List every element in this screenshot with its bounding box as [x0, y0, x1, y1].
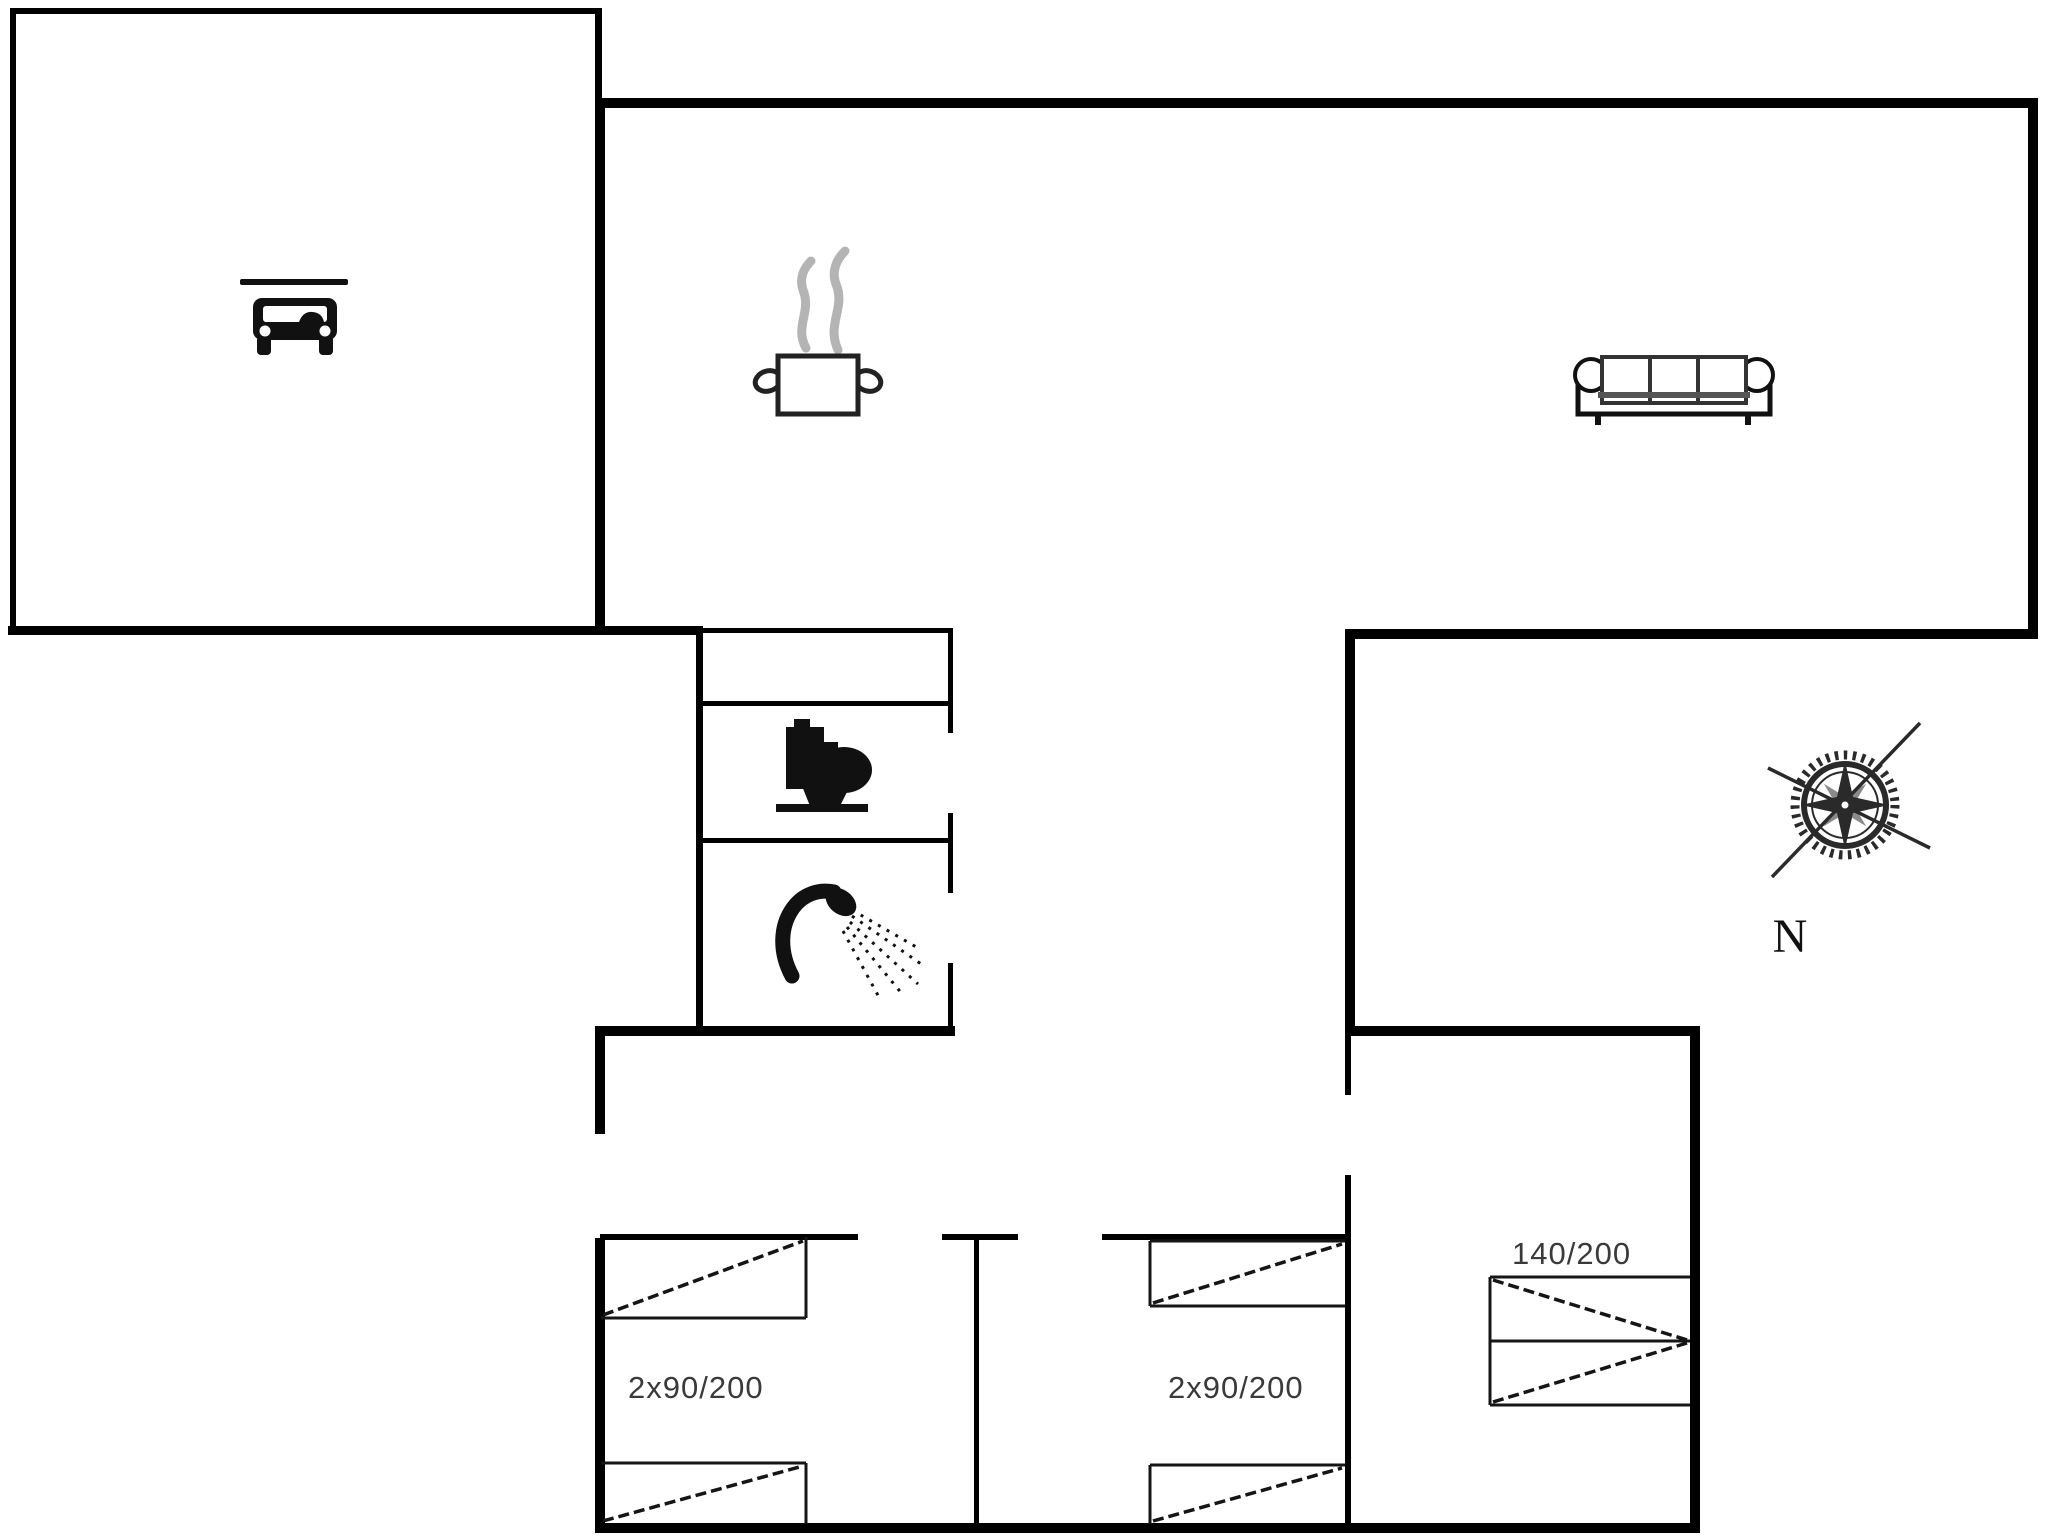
wall: [595, 1026, 955, 1036]
wall: [948, 963, 953, 1030]
bed-middle-bottom: [1150, 1465, 1345, 1524]
garage-door-line: [240, 279, 348, 285]
wall: [948, 629, 953, 733]
floor-plan: N 2x90/200 2x90/200 140/200: [0, 0, 2048, 1536]
wall: [595, 98, 2038, 108]
bedroom-right-bed-label: 140/200: [1512, 1236, 1631, 1271]
wall: [700, 628, 953, 633]
car-icon: [240, 279, 348, 355]
floor-plan-svg: N 2x90/200 2x90/200 140/200: [0, 0, 2048, 1536]
wall: [595, 1238, 605, 1532]
compass-north-label: N: [1773, 910, 1808, 963]
wall: [1690, 1026, 1700, 1532]
compass-rose-icon: [1768, 723, 1930, 877]
wall: [700, 838, 953, 843]
wall: [974, 1234, 979, 1532]
wall: [1102, 1234, 1350, 1240]
wall: [2028, 98, 2038, 639]
bedroom-left-bed-label: 2x90/200: [628, 1370, 764, 1405]
wall: [600, 1234, 858, 1240]
wall: [595, 8, 602, 104]
wall: [696, 629, 703, 1031]
walls: [8, 8, 2038, 1533]
shower-icon: [783, 882, 924, 999]
beds: [601, 1237, 1690, 1524]
wall: [1345, 1026, 1700, 1036]
wall: [595, 98, 605, 635]
bed-middle-top: [1150, 1241, 1345, 1306]
wall: [948, 813, 953, 893]
sofa-icon: [1575, 357, 1773, 425]
wall: [595, 1026, 605, 1134]
wall: [700, 701, 953, 706]
wall: [10, 8, 602, 14]
cooking-pot-icon: [753, 251, 884, 414]
toilet-icon: [776, 719, 872, 812]
bed-left-bottom: [601, 1463, 806, 1524]
bed-right-double: [1490, 1277, 1690, 1405]
wall: [10, 8, 16, 632]
bedroom-middle-bed-label: 2x90/200: [1168, 1370, 1304, 1405]
steam-wisp: [834, 251, 845, 350]
wall: [942, 1234, 1018, 1240]
wall: [1345, 629, 2038, 639]
bed-left-top: [601, 1237, 806, 1318]
steam-wisp: [802, 261, 811, 348]
wall: [1345, 629, 1355, 1035]
wall: [1345, 1175, 1351, 1527]
wall: [1345, 1035, 1351, 1095]
spray-lines: [843, 910, 924, 999]
wall: [595, 1523, 1700, 1533]
